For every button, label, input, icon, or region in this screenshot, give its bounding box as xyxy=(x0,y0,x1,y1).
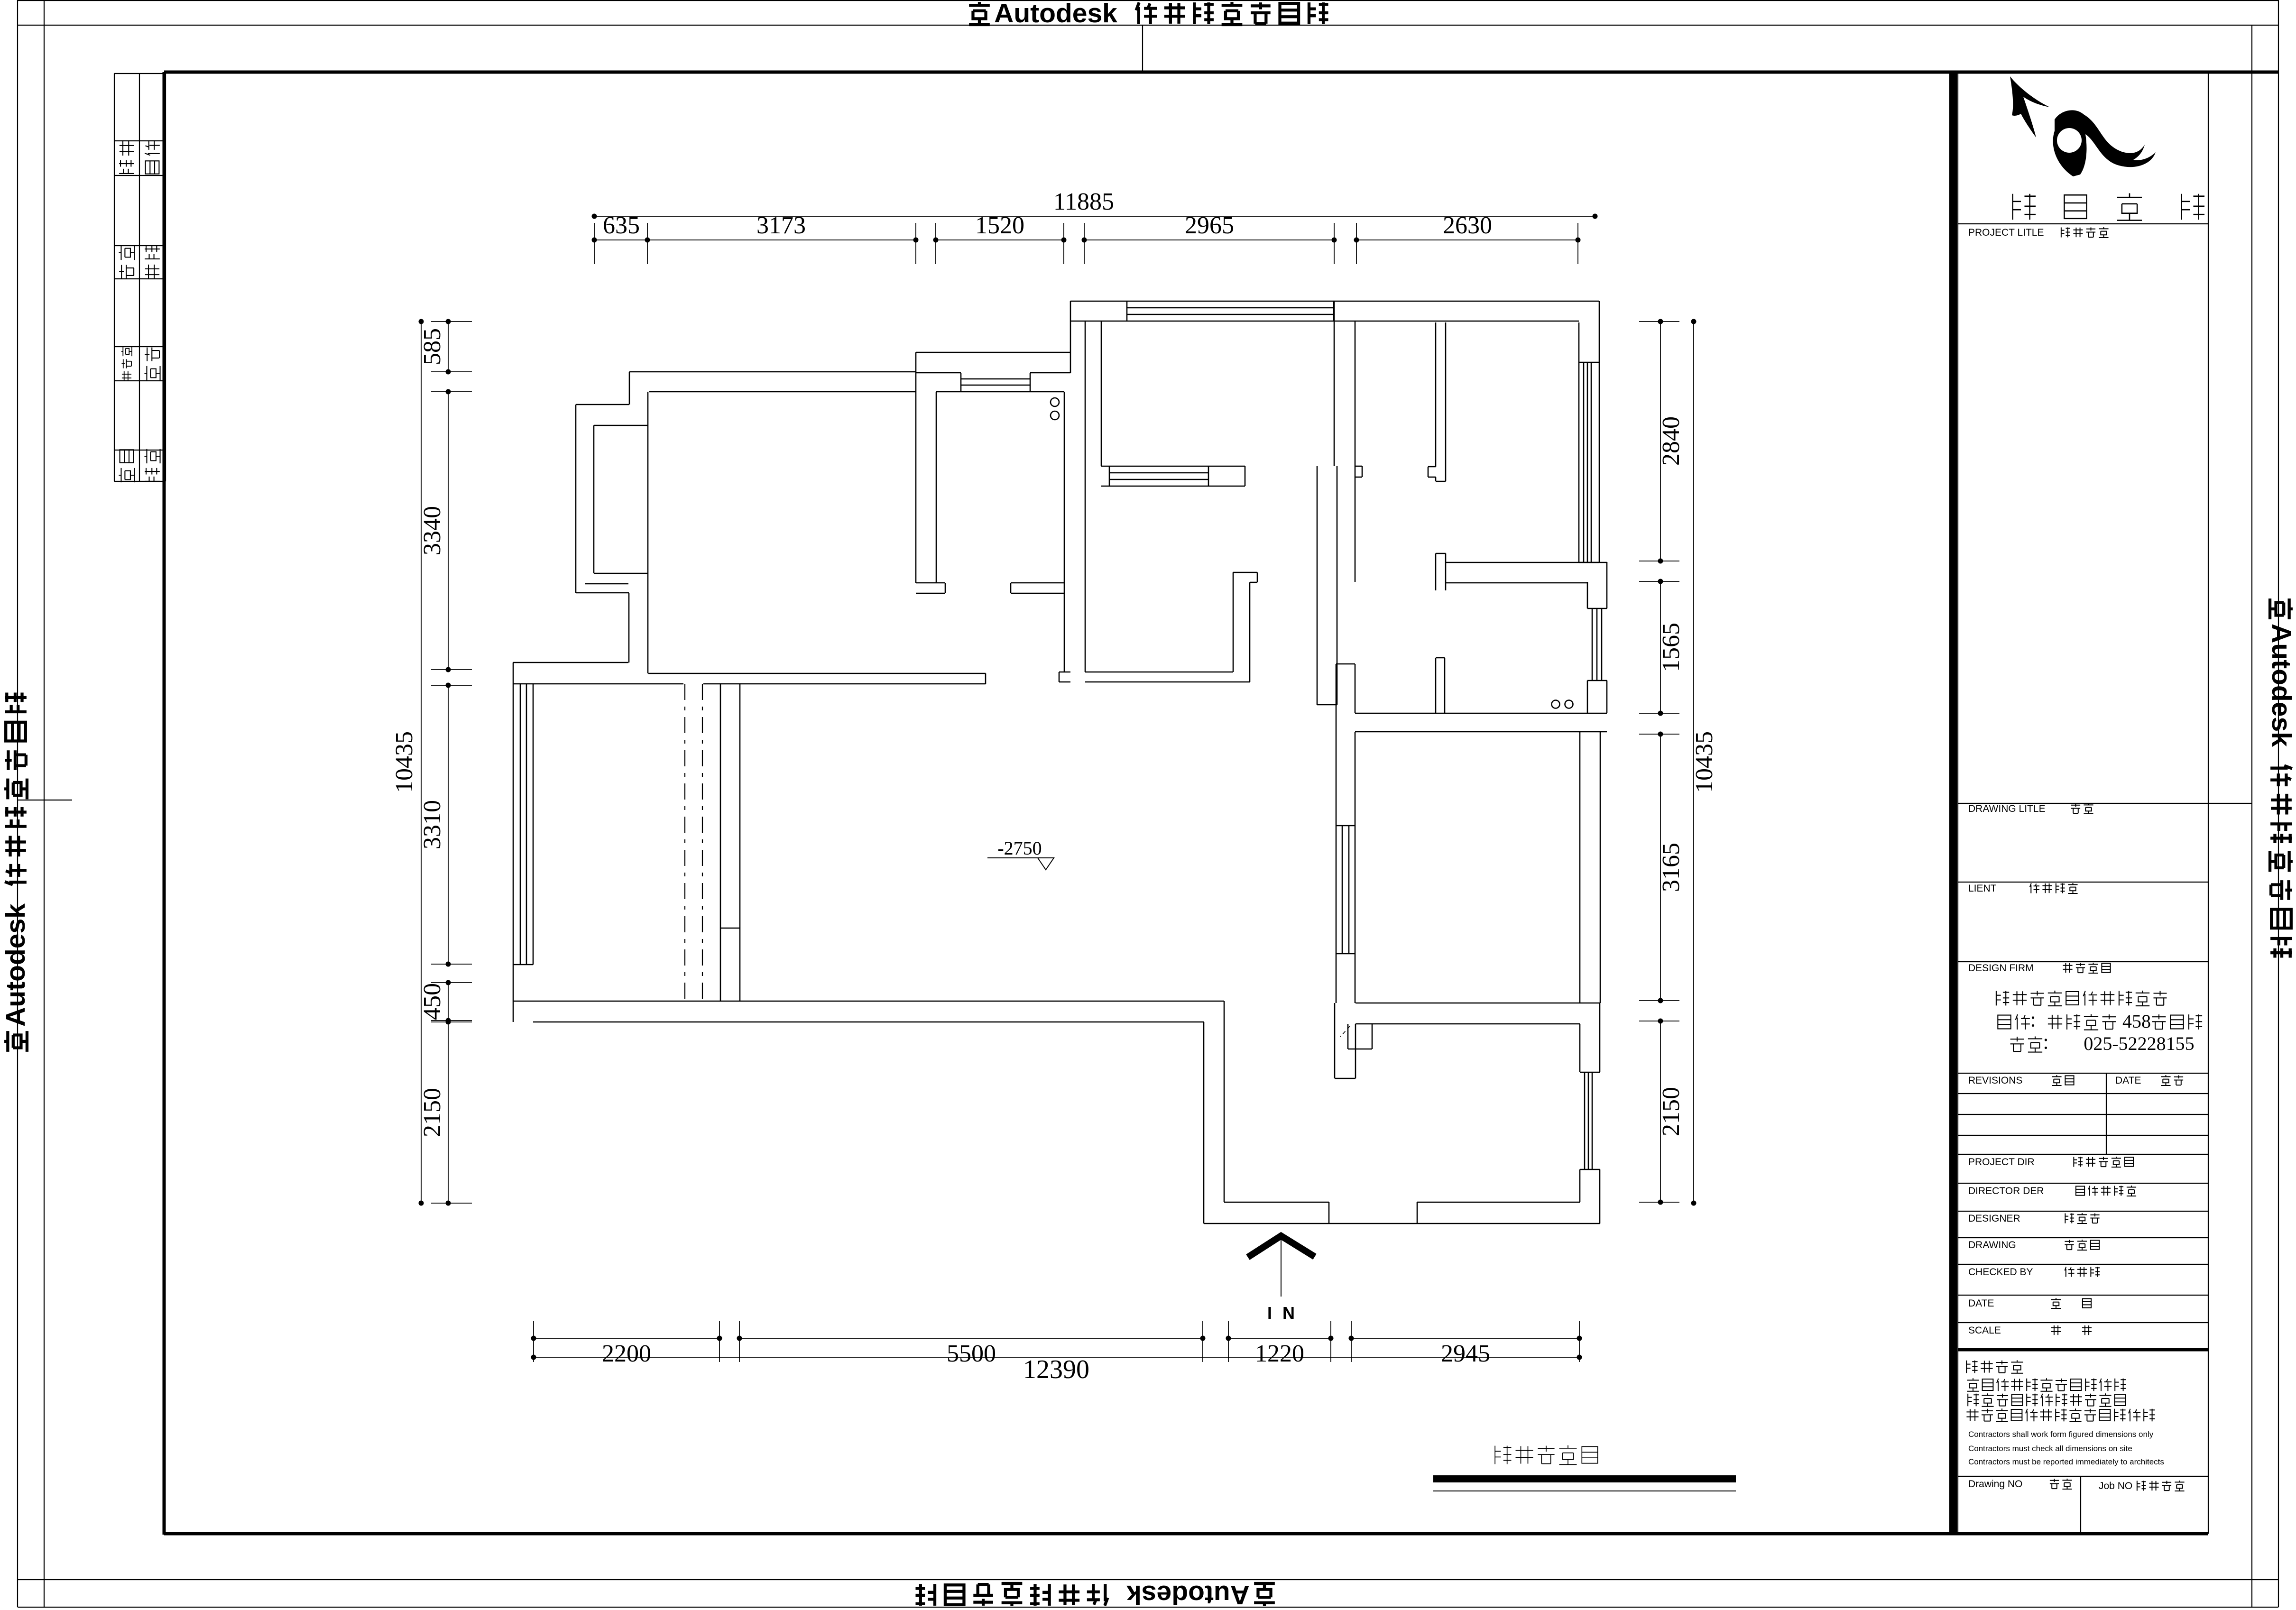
svg-text:450: 450 xyxy=(419,983,446,1020)
svg-text:Drawing NO: Drawing NO xyxy=(1968,1479,2022,1490)
svg-text:2200: 2200 xyxy=(602,1340,651,1367)
svg-text:SCALE: SCALE xyxy=(1968,1325,2001,1336)
svg-text:12390: 12390 xyxy=(1023,1355,1089,1384)
svg-text:2945: 2945 xyxy=(1441,1340,1490,1367)
svg-text:Contractors shall work form: Contractors shall work form figured dime… xyxy=(1968,1430,2154,1439)
svg-text:PROJECT LITLE: PROJECT LITLE xyxy=(1968,227,2044,238)
svg-text:11885: 11885 xyxy=(1053,188,1114,215)
svg-text:2150: 2150 xyxy=(419,1088,446,1137)
svg-text:DATE: DATE xyxy=(2115,1075,2141,1086)
svg-text:REVISIONS: REVISIONS xyxy=(1968,1075,2022,1086)
svg-text:3165: 3165 xyxy=(1658,843,1685,892)
svg-text:3310: 3310 xyxy=(419,800,446,849)
svg-text:LIENT: LIENT xyxy=(1968,883,1997,894)
svg-text:-2750: -2750 xyxy=(997,837,1042,859)
svg-text:2965: 2965 xyxy=(1185,212,1234,239)
svg-text:025-52228155: 025-52228155 xyxy=(2084,1033,2194,1054)
svg-text:DIRECTOR DER: DIRECTOR DER xyxy=(1968,1186,2044,1196)
svg-text:635: 635 xyxy=(603,212,640,239)
svg-text:1220: 1220 xyxy=(1255,1340,1304,1367)
svg-text:I N: I N xyxy=(1267,1303,1298,1323)
svg-text:PROJECT DIR: PROJECT DIR xyxy=(1968,1157,2035,1168)
svg-text:2840: 2840 xyxy=(1658,416,1685,466)
svg-text:DESIGNER: DESIGNER xyxy=(1968,1213,2020,1224)
svg-text:Job NO: Job NO xyxy=(2099,1481,2132,1491)
svg-text:DRAWING LITLE: DRAWING LITLE xyxy=(1968,803,2046,814)
svg-text:1520: 1520 xyxy=(975,212,1024,239)
svg-text:：: ： xyxy=(2029,1012,2045,1030)
svg-text:10435: 10435 xyxy=(1691,731,1718,793)
svg-text:5500: 5500 xyxy=(947,1340,996,1367)
svg-text:2630: 2630 xyxy=(1443,212,1492,239)
svg-text:DESIGN FIRM: DESIGN FIRM xyxy=(1968,963,2034,974)
svg-text:3173: 3173 xyxy=(756,212,806,239)
svg-text:1565: 1565 xyxy=(1658,623,1685,672)
svg-text:Contractors must check all: Contractors must check all dimensions on… xyxy=(1968,1444,2132,1453)
svg-text:3340: 3340 xyxy=(419,506,446,555)
svg-text:DRAWING: DRAWING xyxy=(1968,1240,2016,1251)
svg-text:2150: 2150 xyxy=(1658,1087,1685,1136)
svg-text:CHECKED BY: CHECKED BY xyxy=(1968,1267,2033,1278)
svg-text:10435: 10435 xyxy=(391,731,418,793)
svg-text:Contractors must be reported: Contractors must be reported immediately… xyxy=(1968,1457,2164,1466)
svg-text:：: ： xyxy=(2042,1035,2058,1053)
svg-text:585: 585 xyxy=(419,328,446,365)
svg-text:458: 458 xyxy=(2122,1011,2151,1032)
svg-text:DATE: DATE xyxy=(1968,1298,1994,1309)
